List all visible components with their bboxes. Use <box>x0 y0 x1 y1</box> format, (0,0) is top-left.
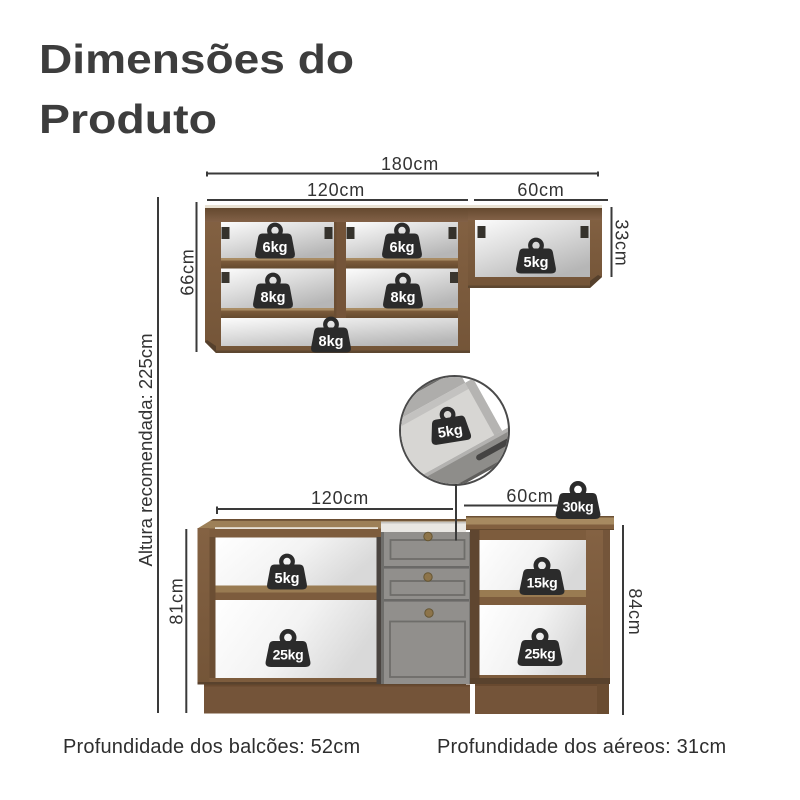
svg-text:Dimensões do: Dimensões do <box>39 36 354 82</box>
svg-text:25kg: 25kg <box>525 646 556 662</box>
svg-text:66cm: 66cm <box>178 248 198 295</box>
svg-text:15kg: 15kg <box>527 575 558 591</box>
svg-text:8kg: 8kg <box>319 334 344 350</box>
svg-text:84cm: 84cm <box>625 588 645 635</box>
svg-text:25kg: 25kg <box>273 647 304 663</box>
svg-text:33cm: 33cm <box>612 219 632 266</box>
svg-text:120cm: 120cm <box>311 488 369 508</box>
svg-text:6kg: 6kg <box>263 240 288 256</box>
svg-text:Altura recomendada: 225cm: Altura recomendada: 225cm <box>136 334 156 567</box>
svg-text:180cm: 180cm <box>381 154 439 174</box>
svg-text:8kg: 8kg <box>391 290 416 306</box>
svg-text:6kg: 6kg <box>390 240 415 256</box>
svg-text:60cm: 60cm <box>506 486 553 506</box>
svg-text:Produto: Produto <box>39 96 217 142</box>
svg-text:120cm: 120cm <box>307 180 365 200</box>
svg-text:5kg: 5kg <box>275 571 300 587</box>
svg-text:8kg: 8kg <box>261 290 286 306</box>
svg-text:60cm: 60cm <box>517 180 564 200</box>
svg-text:30kg: 30kg <box>563 499 594 515</box>
svg-text:81cm: 81cm <box>167 577 187 624</box>
svg-text:Profundidade dos aéreos: 31cm: Profundidade dos aéreos: 31cm <box>437 736 726 758</box>
svg-text:5kg: 5kg <box>524 255 549 271</box>
svg-text:Profundidade dos balcões: 52cm: Profundidade dos balcões: 52cm <box>63 736 360 758</box>
